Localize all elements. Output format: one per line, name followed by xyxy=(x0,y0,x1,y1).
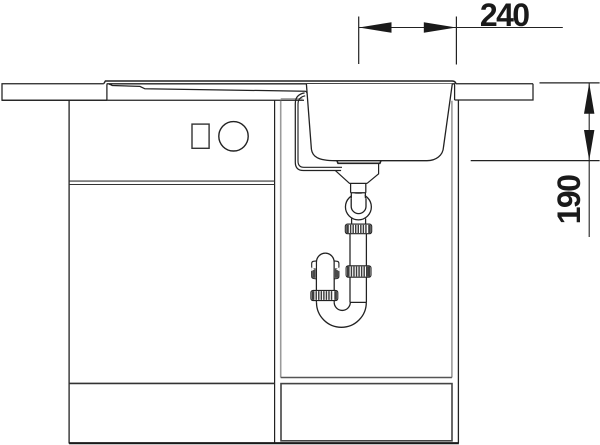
svg-text:190: 190 xyxy=(551,175,587,224)
svg-text:240: 240 xyxy=(480,0,529,33)
